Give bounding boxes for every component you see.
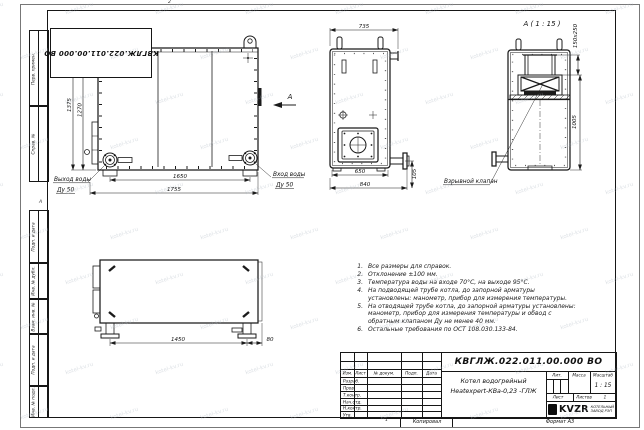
detail-view-a: А ( 1 : 15 )	[443, 20, 582, 185]
kvzr-logo-text: KVZR	[559, 404, 589, 415]
inlet-flange	[229, 151, 257, 176]
mass-label: Масса	[572, 372, 585, 377]
col-dokum: № докум.	[374, 371, 395, 376]
sheet-label: Лист	[553, 395, 564, 400]
kvzr-logo-mark	[548, 404, 557, 415]
product-name-line1: Котел водогрейный	[460, 377, 526, 387]
note-item: 2.Отклонение ±100 мм.	[352, 271, 577, 279]
margin-cell-inv-podl: Инв. № подл.	[29, 385, 49, 418]
product-name: Котел водогрейный Heatexpert-КВа-0,23 -Г…	[441, 371, 546, 403]
valve-label: Взрывной клапан	[444, 179, 498, 185]
col-data: Дата	[426, 371, 437, 376]
col-izm: Изм.	[343, 371, 353, 376]
top-zone-tick: 2	[168, 0, 171, 5]
dim-1375: 1375	[67, 98, 73, 112]
note-item: 1.Все размеры для справок.	[352, 263, 577, 271]
corner-lug-marks	[109, 266, 249, 317]
flue-duct	[523, 55, 557, 75]
detail-title: А ( 1 : 15 )	[522, 20, 560, 28]
margin-cell-sprav-no: Справ. №	[29, 105, 49, 182]
lit-label: Лит.	[552, 372, 562, 377]
margin-cell-inv-dubl: Инв. № дубл.	[29, 262, 49, 300]
stamp-text: КВГЛЖ.022.011.00.000 ВО	[44, 49, 159, 57]
margin-label: Инв. № дубл.	[32, 266, 37, 295]
top-view: 1450 80	[93, 260, 274, 346]
drawing-sheet: Перв. примен. Справ. № Подп. и дата Инв.…	[0, 0, 644, 430]
dim-1650: 1650	[173, 174, 187, 180]
product-name-line2: Heatexpert-КВа-0,23 -ГЛЖ	[451, 387, 537, 397]
margin-cell-vzam-inv: Взам. инв. №	[29, 298, 49, 335]
row-razrab: Разраб.	[343, 378, 359, 383]
margin-label: Подп. и дата	[32, 222, 37, 251]
explosion-valve	[518, 75, 562, 95]
scale-label: Масштаб	[593, 372, 613, 377]
note-item: 6.Остальные требования по ОСТ 108.030.13…	[352, 326, 577, 334]
margin-label: Подп. и дата	[32, 345, 37, 374]
outlet-dn: Ду 50	[56, 188, 74, 194]
margin-label: Взам. инв. №	[32, 302, 37, 331]
row-prov: Пров.	[343, 385, 355, 390]
hatch-band	[508, 95, 570, 100]
dim-735: 735	[359, 24, 370, 30]
rotated-docnumber-stamp: КВГЛЖ.022.011.00.000 ВО	[50, 28, 152, 78]
dim-150x250: 150x250	[573, 23, 579, 48]
note-item: 3.Температура воды на входе 70°С, на вых…	[352, 279, 577, 287]
row-nachotd: Нач.отд.	[343, 399, 362, 404]
dim-105: 105	[412, 168, 418, 179]
dim-840: 840	[360, 182, 371, 188]
margin-cell-podp-data-2: Подп. и дата	[29, 333, 49, 387]
inlet-label: Вход воды	[273, 172, 306, 178]
left-bracket	[93, 266, 100, 318]
note-item: 4.На подводящей трубе котла, до запорной…	[352, 287, 577, 303]
outlet-label: Выход воды	[54, 177, 91, 183]
section-arrow-a: А	[273, 93, 296, 108]
zone-letter: А	[39, 200, 42, 205]
row-utv: Утв.	[343, 412, 352, 417]
note-item: 5.На отводящей трубе котла, до запорной …	[352, 303, 577, 327]
inlet-dn: Ду 50	[275, 183, 293, 189]
support-feet	[95, 323, 256, 338]
margin-cell-podp-data-1: Подп. и дата	[29, 210, 49, 264]
format-label: Формат А3	[528, 419, 592, 425]
sheets-label: Листов	[576, 395, 592, 400]
title-block: Изм. Лист № докум. Подп. Дата Разраб. Пр…	[340, 352, 617, 419]
margin-label: Перв. примен.	[32, 52, 37, 84]
outlet-flange	[103, 153, 132, 176]
row-nkontr: Н.контр.	[343, 406, 362, 411]
document-number: КВГЛЖ.022.011.00.000 ВО	[441, 353, 616, 371]
col-podp: Подп.	[405, 371, 418, 376]
sheets-value: 1	[604, 395, 607, 400]
scale-value: 1 : 15	[595, 383, 612, 389]
copied-label: Копировал	[402, 419, 452, 425]
dim-80: 80	[267, 337, 274, 343]
margin-label: Справ. №	[32, 133, 37, 154]
margin-label: Инв. № подл.	[32, 387, 37, 417]
organization-cell: KVZR КОТЕЛЬНЫЙЗАВОД РЭП	[546, 401, 616, 417]
burner-plate	[338, 128, 378, 162]
section-arrow-letter: А	[287, 93, 293, 101]
side-view: 735 650 840 105	[330, 24, 418, 190]
dim-1270: 1270	[78, 103, 84, 117]
margin-cell-perv-primen: Перв. примен.	[29, 30, 49, 107]
dim-1755: 1755	[167, 187, 181, 193]
col-list: Лист	[355, 371, 366, 376]
sight-crosshair	[338, 110, 377, 120]
dim-1450: 1450	[171, 337, 185, 343]
dim-650: 650	[355, 169, 366, 175]
organization-name: КОТЕЛЬНЫЙЗАВОД РЭП	[591, 405, 614, 414]
dim-1005: 1005	[572, 115, 578, 129]
row-tkontr: Т.контр.	[343, 392, 361, 397]
technical-notes: 1.Все размеры для справок. 2.Отклонение …	[352, 263, 577, 334]
